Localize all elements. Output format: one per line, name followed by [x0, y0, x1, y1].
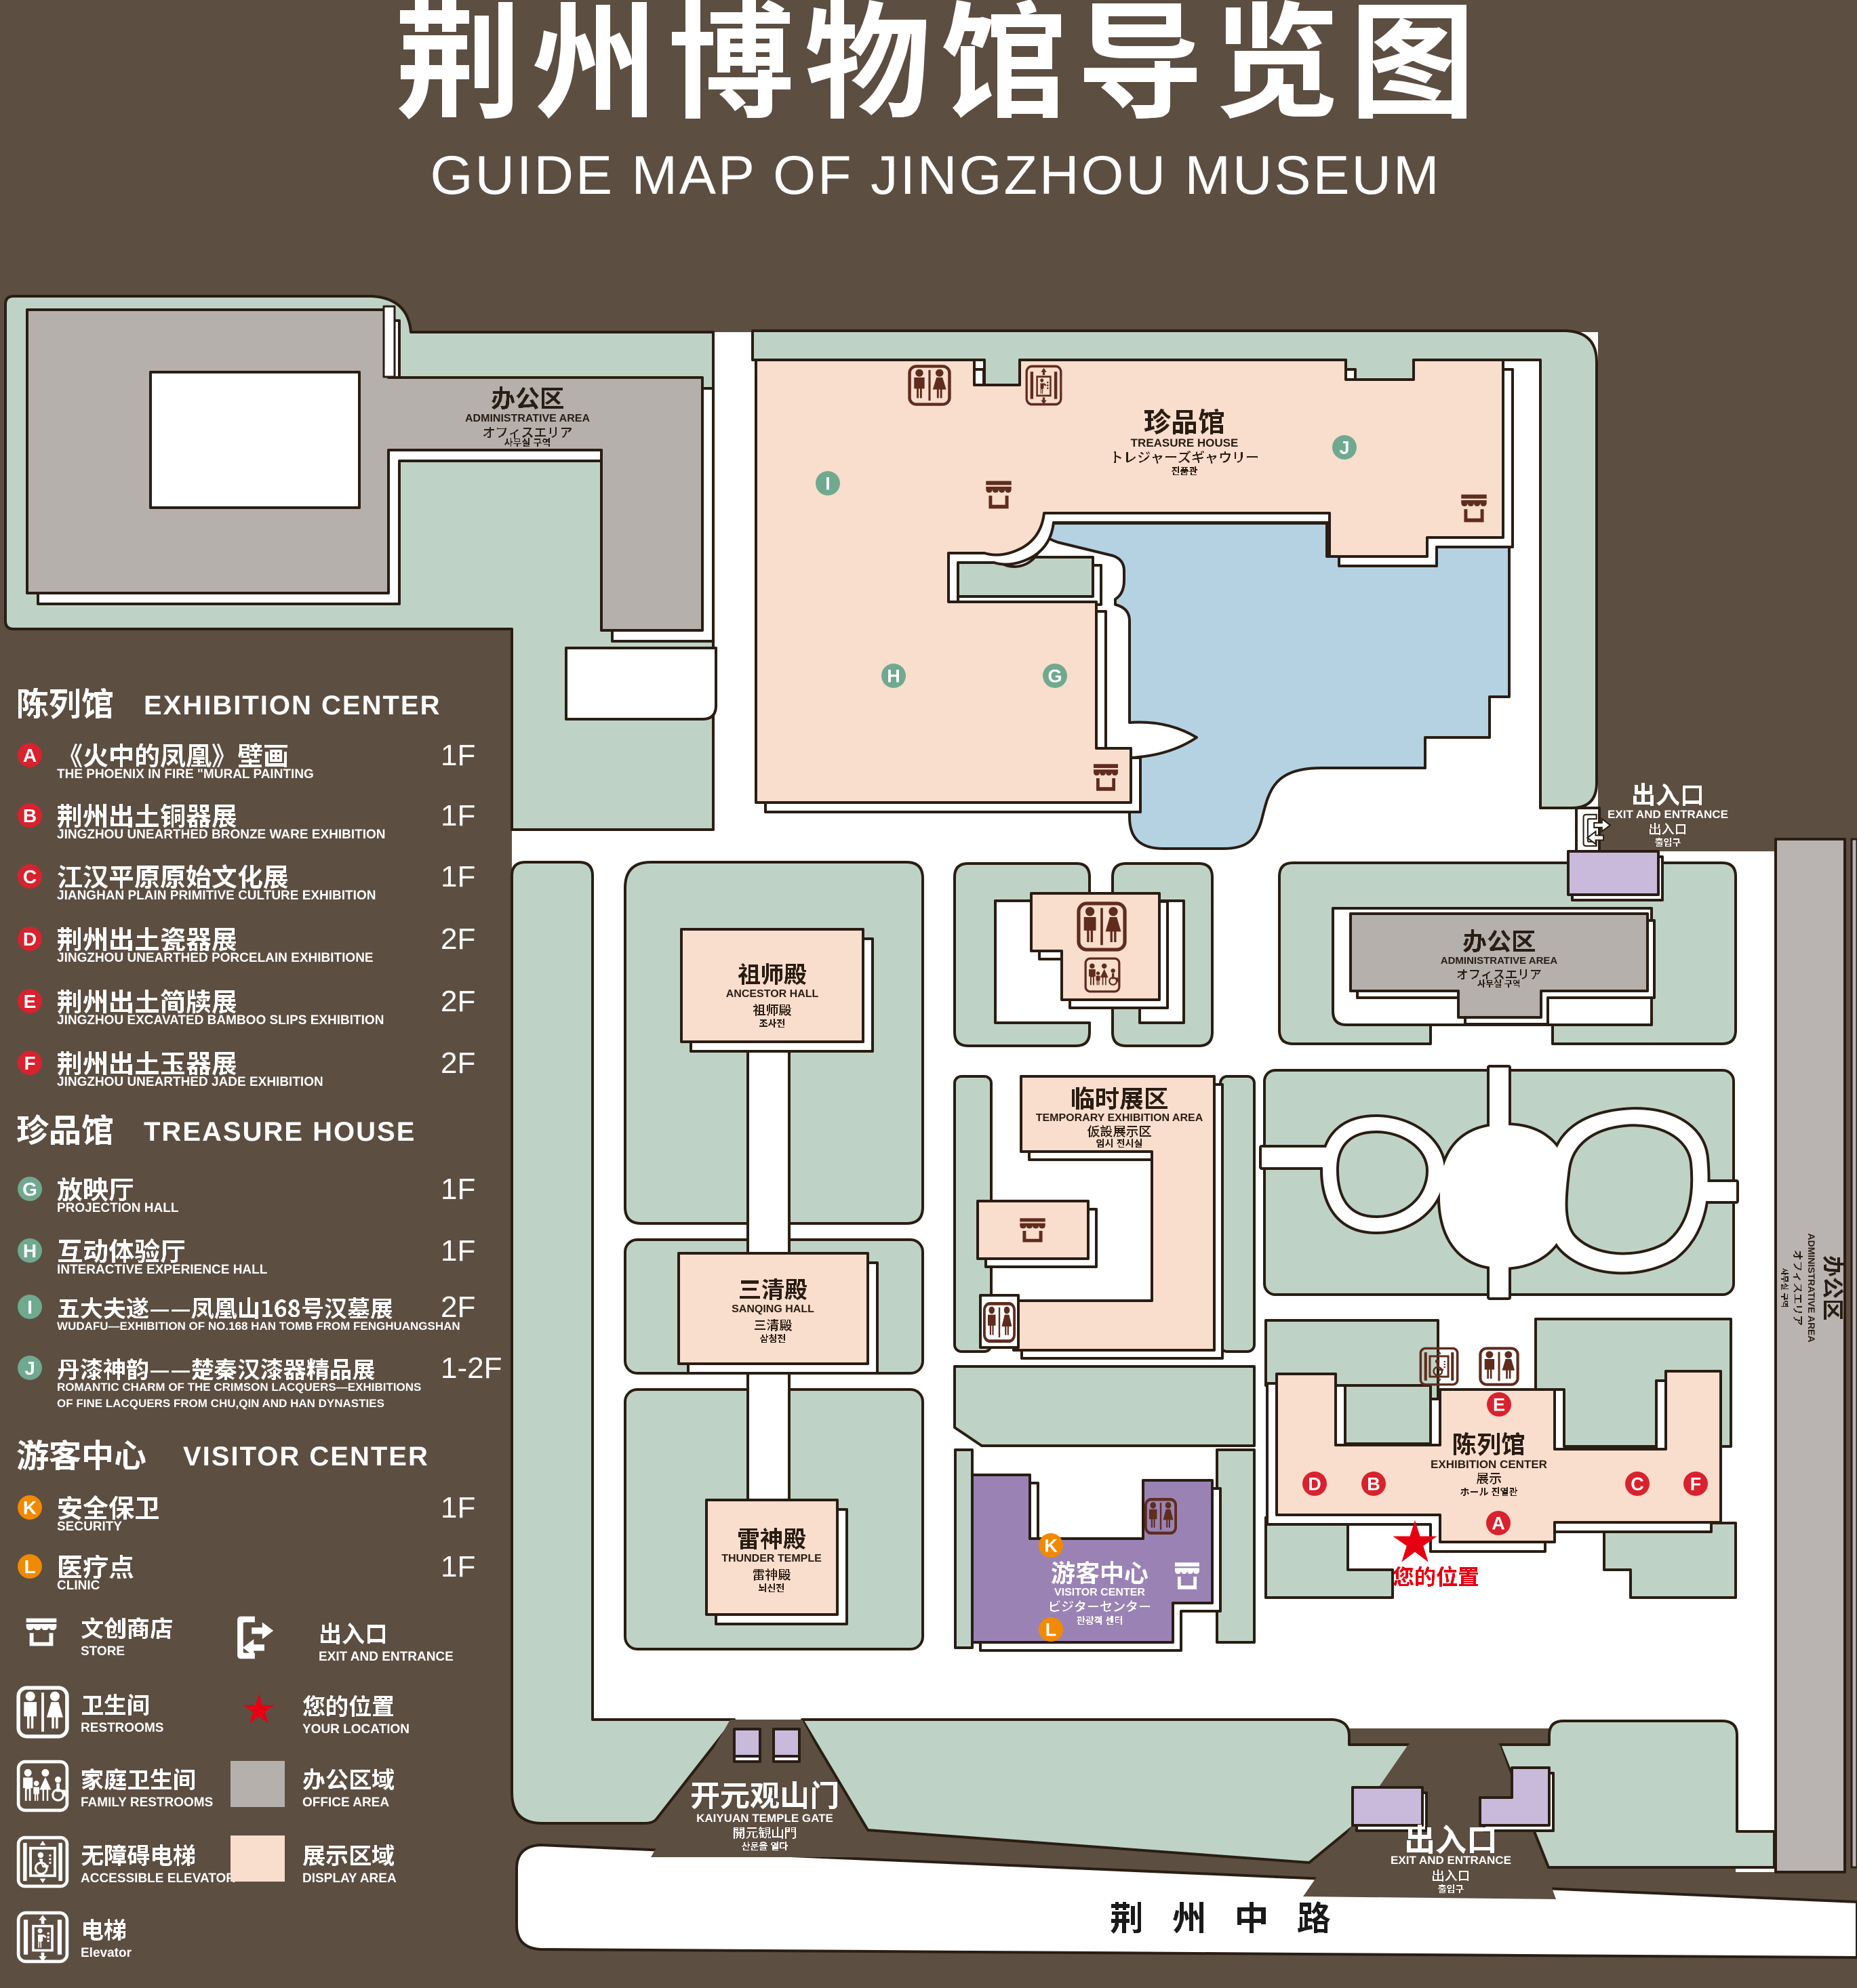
svg-text:TEMPORARY EXHIBITION AREA: TEMPORARY EXHIBITION AREA [1036, 1112, 1203, 1124]
svg-text:D: D [1308, 1474, 1321, 1495]
svg-text:ANCESTOR HALL: ANCESTOR HALL [726, 988, 819, 1000]
svg-text:1F: 1F [441, 1550, 475, 1583]
svg-text:PROJECTION HALL: PROJECTION HALL [57, 1201, 179, 1215]
svg-text:ACCESSIBLE ELEVATOR: ACCESSIBLE ELEVATOR [81, 1871, 235, 1886]
svg-text:JINGZHOU EXCAVATED BAMBOO SLIP: JINGZHOU EXCAVATED BAMBOO SLIPS EXHIBITI… [57, 1013, 384, 1028]
svg-text:F: F [1690, 1474, 1702, 1495]
svg-text:1F: 1F [441, 1491, 475, 1524]
svg-text:1F: 1F [441, 1173, 475, 1206]
svg-text:1F: 1F [441, 1234, 475, 1267]
svg-text:K: K [23, 1497, 37, 1518]
svg-text:F: F [24, 1053, 35, 1074]
svg-text:EXHIBITION CENTER: EXHIBITION CENTER [1431, 1458, 1547, 1471]
svg-text:D: D [23, 929, 37, 950]
svg-text:Elevator: Elevator [81, 1946, 132, 1960]
svg-text:JINGZHOU UNEARTHED PORCELAIN E: JINGZHOU UNEARTHED PORCELAIN EXHIBITIONE [57, 951, 374, 965]
svg-text:I: I [825, 474, 831, 494]
svg-text:J: J [1339, 438, 1349, 458]
svg-text:1-2F: 1-2F [441, 1352, 502, 1385]
svg-text:2F: 2F [441, 985, 475, 1018]
svg-text:TREASURE HOUSE: TREASURE HOUSE [144, 1117, 416, 1147]
svg-text:DISPLAY AREA: DISPLAY AREA [302, 1871, 397, 1886]
svg-text:1F: 1F [441, 799, 475, 832]
svg-text:H: H [23, 1240, 37, 1261]
svg-text:2F: 2F [441, 1291, 475, 1324]
svg-text:A: A [23, 745, 37, 766]
svg-text:ROMANTIC CHARM OF THE CRIMSON: ROMANTIC CHARM OF THE CRIMSON LACQUERS—E… [57, 1381, 421, 1394]
svg-text:EXHIBITION CENTER: EXHIBITION CENTER [144, 691, 441, 721]
svg-text:RESTROOMS: RESTROOMS [81, 1721, 163, 1735]
svg-text:2F: 2F [441, 922, 475, 956]
svg-text:C: C [1631, 1474, 1644, 1495]
svg-text:EXIT AND ENTRANCE: EXIT AND ENTRANCE [1608, 808, 1728, 821]
svg-text:YOUR LOCATION: YOUR LOCATION [302, 1722, 410, 1737]
svg-text:1F: 1F [441, 860, 475, 893]
svg-text:WUDAFU—EXHIBITION OF NO.168 HA: WUDAFU—EXHIBITION OF NO.168 HAN TOMB FRO… [57, 1320, 460, 1333]
svg-text:INTERACTIVE EXPERIENCE HALL: INTERACTIVE EXPERIENCE HALL [57, 1263, 268, 1277]
svg-text:A: A [1492, 1514, 1505, 1534]
svg-text:K: K [1044, 1536, 1058, 1556]
svg-text:H: H [887, 666, 900, 687]
svg-text:FAMILY RESTROOMS: FAMILY RESTROOMS [81, 1796, 213, 1810]
svg-text:JIANGHAN PLAIN PRIMITIVE CULTU: JIANGHAN PLAIN PRIMITIVE CULTURE EXHIBIT… [57, 889, 376, 903]
svg-text:ADMINISTRATIVE AREA: ADMINISTRATIVE AREA [1806, 1234, 1817, 1343]
svg-text:C: C [23, 866, 37, 887]
svg-text:TREASURE HOUSE: TREASURE HOUSE [1131, 437, 1239, 449]
svg-text:KAIYUAN TEMPLE GATE: KAIYUAN TEMPLE GATE [696, 1812, 833, 1825]
svg-text:THE PHOENIX IN FIRE "MURAL PAI: THE PHOENIX IN FIRE "MURAL PAINTING [57, 767, 314, 782]
svg-text:B: B [1367, 1474, 1380, 1495]
svg-text:E: E [24, 991, 37, 1012]
svg-text:E: E [1493, 1395, 1505, 1415]
svg-text:ADMINISTRATIVE AREA: ADMINISTRATIVE AREA [465, 413, 590, 424]
svg-text:SANQING HALL: SANQING HALL [732, 1303, 814, 1315]
svg-text:J: J [24, 1358, 35, 1379]
svg-text:CLINIC: CLINIC [57, 1579, 100, 1593]
svg-text:L: L [1045, 1620, 1057, 1640]
svg-text:THUNDER TEMPLE: THUNDER TEMPLE [721, 1553, 822, 1564]
svg-text:STORE: STORE [81, 1644, 125, 1659]
svg-text:L: L [24, 1556, 35, 1577]
svg-text:EXIT AND ENTRANCE: EXIT AND ENTRANCE [1391, 1854, 1511, 1867]
svg-text:B: B [23, 805, 37, 826]
svg-text:G: G [22, 1179, 37, 1200]
svg-text:JINGZHOU UNEARTHED JADE EXHIBI: JINGZHOU UNEARTHED JADE EXHIBITION [57, 1075, 323, 1089]
svg-text:1F: 1F [441, 739, 475, 772]
svg-text:VISITOR CENTER: VISITOR CENTER [183, 1442, 429, 1472]
svg-text:OFFICE AREA: OFFICE AREA [302, 1796, 389, 1810]
svg-text:EXIT AND ENTRANCE: EXIT AND ENTRANCE [319, 1650, 454, 1664]
svg-text:JINGZHOU UNEARTHED BRONZE WARE: JINGZHOU UNEARTHED BRONZE WARE EXHIBITIO… [57, 828, 386, 842]
svg-text:G: G [1047, 666, 1062, 687]
svg-text:2F: 2F [441, 1047, 475, 1080]
svg-text:SECURITY: SECURITY [57, 1520, 122, 1534]
svg-text:GUIDE MAP OF JINGZHOU MUSEUM: GUIDE MAP OF JINGZHOU MUSEUM [430, 145, 1441, 206]
svg-text:ADMINISTRATIVE AREA: ADMINISTRATIVE AREA [1441, 955, 1558, 967]
svg-text:OF FINE LACQUERS FROM CHU,QIN: OF FINE LACQUERS FROM CHU,QIN AND HAN DY… [57, 1397, 384, 1410]
svg-text:VISITOR CENTER: VISITOR CENTER [1054, 1587, 1145, 1598]
svg-text:I: I [27, 1297, 33, 1318]
